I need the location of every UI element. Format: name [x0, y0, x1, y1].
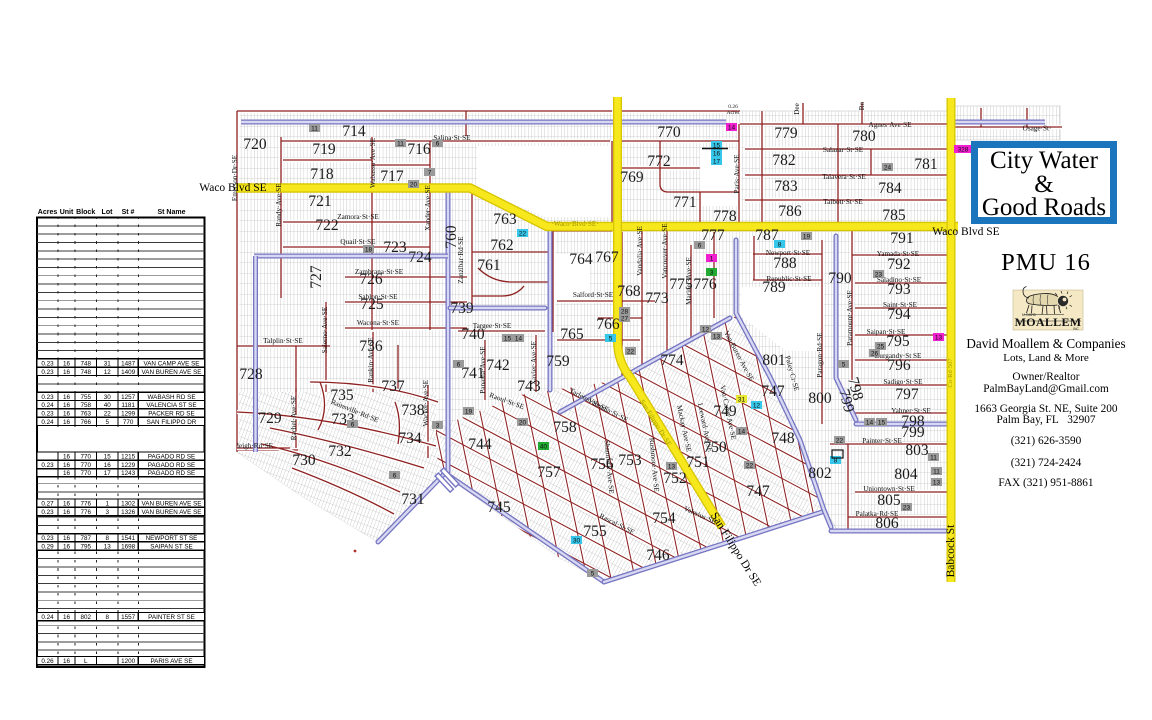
svg-text:Newport·St·SE: Newport·St·SE — [766, 249, 811, 257]
svg-text:PAGADO RD SE: PAGADO RD SE — [148, 470, 195, 477]
svg-text:1: 1 — [105, 501, 109, 508]
svg-text:16: 16 — [63, 470, 71, 477]
svg-text:Vancouver·Ave·SE: Vancouver·Ave·SE — [661, 223, 669, 279]
svg-text:20: 20 — [410, 181, 418, 188]
svg-text:0.24: 0.24 — [41, 614, 54, 621]
svg-text:751: 751 — [686, 454, 709, 471]
svg-text:0.27: 0.27 — [41, 501, 54, 508]
svg-text:16: 16 — [104, 462, 112, 469]
svg-text:779: 779 — [774, 125, 798, 142]
svg-text:771: 771 — [673, 194, 696, 211]
svg-text:7: 7 — [428, 169, 432, 176]
svg-text:13: 13 — [713, 333, 721, 340]
svg-text:6: 6 — [457, 361, 461, 368]
svg-text:11: 11 — [311, 125, 318, 132]
svg-text:Waco Blvd SE: Waco Blvd SE — [932, 226, 999, 238]
svg-text:782: 782 — [772, 152, 795, 169]
svg-text:1: 1 — [710, 255, 714, 262]
svg-text:Republic·St·SE: Republic·St·SE — [766, 275, 812, 283]
svg-text:748: 748 — [80, 369, 91, 376]
svg-text:745: 745 — [487, 499, 511, 516]
svg-text:L: L — [84, 658, 88, 665]
svg-text:leigh·Rd·SE: leigh·Rd·SE — [237, 442, 274, 450]
svg-text:754: 754 — [652, 510, 676, 527]
svg-text:1409: 1409 — [121, 369, 136, 376]
svg-text:PAGADO RD SE: PAGADO RD SE — [148, 462, 195, 469]
svg-text:1181: 1181 — [121, 402, 135, 409]
svg-text:WABASH RD SE: WABASH RD SE — [147, 394, 195, 401]
svg-text:764: 764 — [569, 251, 593, 268]
svg-text:739: 739 — [450, 300, 474, 317]
svg-text:718: 718 — [310, 166, 334, 183]
svg-text:Randy·Ave·SE: Randy·Ave·SE — [275, 183, 283, 227]
svg-text:22: 22 — [104, 411, 112, 418]
svg-text:Uniontown·St·SE: Uniontown·St·SE — [863, 485, 915, 493]
svg-text:769: 769 — [620, 169, 644, 186]
svg-text:761: 761 — [477, 257, 500, 274]
svg-text:801: 801 — [762, 352, 785, 369]
svg-text:Lot: Lot — [102, 209, 114, 216]
svg-text:714: 714 — [342, 123, 366, 140]
svg-text:753: 753 — [618, 452, 642, 469]
svg-text:Agnes·Ave·SE: Agnes·Ave·SE — [869, 121, 913, 129]
svg-text:8: 8 — [778, 241, 782, 248]
svg-text:Lots, Land & More: Lots, Land & More — [1003, 352, 1089, 364]
svg-text:5: 5 — [609, 335, 613, 342]
svg-text:797: 797 — [895, 386, 919, 403]
svg-text:16: 16 — [63, 535, 71, 542]
svg-text:13: 13 — [104, 544, 112, 551]
svg-text:755: 755 — [583, 523, 607, 540]
svg-text:Paris·Ave·SE: Paris·Ave·SE — [733, 154, 741, 194]
svg-text:6: 6 — [393, 472, 397, 479]
svg-text:Zanzibar·Rd·SE: Zanzibar·Rd·SE — [457, 236, 465, 284]
svg-text:Yahner·St·SE: Yahner·St·SE — [891, 407, 931, 415]
svg-text:0.24: 0.24 — [41, 419, 54, 426]
svg-text:Quail·St·SE: Quail·St·SE — [340, 238, 376, 246]
svg-text:1257: 1257 — [121, 394, 136, 401]
svg-text:Salerno·Ave·SE: Salerno·Ave·SE — [321, 306, 329, 353]
svg-text:791: 791 — [890, 230, 913, 247]
svg-text:(321) 724-2424: (321) 724-2424 — [1011, 457, 1082, 469]
svg-text:16: 16 — [63, 394, 71, 401]
svg-text:31: 31 — [104, 361, 112, 368]
svg-text:Rachel·Ave·SE: Rachel·Ave·SE — [290, 395, 298, 440]
svg-text:PACKER RD SE: PACKER RD SE — [148, 411, 194, 418]
svg-text:Acres: Acres — [727, 110, 740, 116]
svg-text:Wacona·St·SE: Wacona·St·SE — [357, 319, 400, 327]
svg-text:800: 800 — [808, 390, 832, 407]
svg-text:VAN BUREN AVE SE: VAN BUREN AVE SE — [142, 369, 202, 376]
svg-text:328: 328 — [958, 146, 969, 153]
svg-text:Babcock St: Babcock St — [945, 524, 957, 578]
svg-text:PAGADO RD SE: PAGADO RD SE — [148, 454, 195, 461]
svg-text:5: 5 — [591, 570, 595, 577]
svg-text:748: 748 — [771, 430, 795, 447]
svg-text:Salazar·St·SE: Salazar·St·SE — [823, 146, 864, 154]
svg-text:16: 16 — [63, 509, 71, 516]
svg-text:724: 724 — [408, 249, 432, 266]
svg-text:Sadigo·St·SE: Sadigo·St·SE — [883, 378, 923, 386]
svg-text:781: 781 — [914, 156, 937, 173]
svg-text:12: 12 — [104, 369, 112, 376]
svg-text:763: 763 — [80, 411, 91, 418]
svg-text:731: 731 — [401, 491, 424, 508]
svg-text:40: 40 — [540, 443, 548, 450]
svg-text:786: 786 — [778, 203, 802, 220]
svg-text:Talavera·St·SE: Talavera·St·SE — [822, 173, 866, 181]
svg-text:766: 766 — [596, 316, 620, 333]
svg-text:770: 770 — [80, 462, 91, 469]
svg-text:16: 16 — [63, 361, 71, 368]
svg-text:805: 805 — [877, 492, 901, 509]
svg-text:1243: 1243 — [121, 470, 136, 477]
svg-text:Ro: Ro — [858, 101, 866, 110]
svg-text:804: 804 — [894, 466, 918, 483]
svg-text:Painter·St·SE: Painter·St·SE — [862, 437, 902, 445]
svg-text:Wacker·Ave·SE: Wacker·Ave·SE — [422, 379, 430, 426]
svg-text:16: 16 — [63, 614, 71, 621]
svg-text:VAN BUREN AVE SE: VAN BUREN AVE SE — [142, 501, 202, 508]
svg-text:802: 802 — [808, 465, 831, 482]
svg-text:30: 30 — [104, 394, 112, 401]
svg-text:5: 5 — [842, 361, 846, 368]
svg-text:22: 22 — [519, 230, 527, 237]
svg-text:747: 747 — [746, 483, 770, 500]
svg-text:3: 3 — [710, 269, 714, 276]
svg-text:770: 770 — [80, 470, 91, 477]
svg-text:1302: 1302 — [121, 501, 136, 508]
svg-text:728: 728 — [239, 366, 263, 383]
svg-text:785: 785 — [882, 207, 906, 224]
svg-text:1299: 1299 — [121, 411, 136, 418]
svg-text:748: 748 — [80, 361, 91, 368]
svg-text:16: 16 — [63, 419, 71, 426]
svg-text:13: 13 — [933, 479, 941, 486]
svg-text:Talplin·St·SE: Talplin·St·SE — [263, 337, 303, 345]
svg-text:0.23: 0.23 — [41, 535, 54, 542]
svg-text:1215: 1215 — [121, 454, 136, 461]
svg-text:768: 768 — [617, 283, 641, 300]
svg-text:Talbott·St·SE: Talbott·St·SE — [823, 198, 863, 206]
svg-text:1557: 1557 — [121, 614, 136, 621]
svg-text:752: 752 — [663, 470, 686, 487]
svg-text:PMU 16: PMU 16 — [1001, 249, 1091, 276]
svg-text:12: 12 — [702, 326, 710, 333]
svg-text:758: 758 — [553, 419, 577, 436]
svg-text:799: 799 — [901, 424, 925, 441]
svg-text:22: 22 — [836, 437, 844, 444]
svg-text:776: 776 — [693, 276, 717, 293]
svg-text:0.23: 0.23 — [41, 462, 54, 469]
svg-text:727: 727 — [308, 265, 325, 289]
svg-text:730: 730 — [292, 452, 316, 469]
svg-text:783: 783 — [774, 178, 798, 195]
svg-text:717: 717 — [380, 168, 404, 185]
svg-text:778: 778 — [713, 208, 737, 225]
svg-text:14: 14 — [738, 428, 746, 435]
svg-text:763: 763 — [493, 211, 517, 228]
svg-text:780: 780 — [852, 128, 876, 145]
svg-text:Rankin·Ave·SE: Rankin·Ave·SE — [367, 337, 375, 383]
svg-text:Sablon·St·SE: Sablon·St·SE — [358, 293, 398, 301]
svg-text:6: 6 — [351, 421, 355, 428]
svg-text:Saint·St·SE: Saint·St·SE — [883, 301, 918, 309]
svg-text:40: 40 — [104, 402, 112, 409]
svg-text:767: 767 — [595, 249, 619, 266]
svg-text:732: 732 — [328, 443, 351, 460]
svg-text:14: 14 — [515, 335, 523, 342]
svg-text:Xander·Ave·SE: Xander·Ave·SE — [424, 185, 432, 231]
svg-text:716: 716 — [407, 141, 431, 158]
svg-text:744: 744 — [468, 436, 492, 453]
svg-text:Owner/Realtor: Owner/Realtor — [1012, 371, 1079, 383]
svg-text:787: 787 — [80, 535, 91, 542]
svg-text:722: 722 — [315, 217, 338, 234]
svg-text:3: 3 — [436, 422, 440, 429]
svg-text:16: 16 — [713, 150, 721, 157]
svg-text:Targee·St·SE: Targee·St·SE — [473, 322, 512, 330]
svg-text:11: 11 — [933, 468, 940, 475]
svg-text:802: 802 — [80, 614, 91, 621]
svg-text:3: 3 — [105, 509, 109, 516]
svg-text:27: 27 — [621, 315, 629, 322]
svg-text:22: 22 — [746, 462, 754, 469]
svg-text:1200: 1200 — [121, 658, 136, 665]
svg-text:Xavier·Ave·SE: Xavier·Ave·SE — [530, 340, 538, 385]
svg-text:Palm Bay, FL 32907: Palm Bay, FL 32907 — [996, 414, 1095, 426]
svg-text:762: 762 — [490, 237, 513, 254]
svg-text:770: 770 — [123, 419, 134, 426]
svg-text:Salford·St·SE: Salford·St·SE — [573, 291, 614, 299]
svg-text:766: 766 — [80, 419, 91, 426]
svg-text:719: 719 — [312, 141, 336, 158]
svg-text:784: 784 — [878, 180, 902, 197]
svg-text:15: 15 — [878, 419, 886, 426]
svg-text:Acres: Acres — [38, 209, 58, 216]
svg-text:14: 14 — [866, 419, 874, 426]
svg-text:PalmBayLand@Gmail.com: PalmBayLand@Gmail.com — [983, 383, 1109, 395]
svg-text:Burgandy·St SE: Burgandy·St SE — [875, 352, 922, 360]
svg-text:0.23: 0.23 — [41, 361, 54, 368]
svg-text:·Waco·Blvd·SE·: ·Waco·Blvd·SE· — [552, 220, 599, 228]
svg-text:VAN CAMP AVE SE: VAN CAMP AVE SE — [144, 361, 200, 368]
svg-text:1487: 1487 — [121, 361, 136, 368]
svg-text:6: 6 — [436, 140, 440, 147]
svg-text:St Name: St Name — [157, 209, 185, 216]
svg-text:11: 11 — [397, 140, 404, 147]
svg-text:720: 720 — [243, 136, 267, 153]
svg-text:14: 14 — [728, 124, 736, 131]
svg-text:Yamada·St·SE: Yamada·St·SE — [877, 250, 920, 258]
svg-text:734: 734 — [398, 430, 422, 447]
svg-text:737: 737 — [381, 378, 405, 395]
svg-text:8: 8 — [105, 614, 109, 621]
svg-text:Zambrana·St·SE: Zambrana·St·SE — [355, 268, 404, 276]
svg-text:758: 758 — [80, 402, 91, 409]
svg-text:0.23: 0.23 — [41, 394, 54, 401]
svg-text:772: 772 — [647, 153, 670, 170]
svg-text:Paramount·Ave·SE: Paramount·Ave·SE — [846, 290, 854, 346]
svg-text:30: 30 — [573, 537, 581, 544]
svg-text:PAINTER ST SE: PAINTER ST SE — [148, 614, 195, 621]
svg-text:773: 773 — [645, 290, 669, 307]
svg-text:Block: Block — [76, 209, 95, 216]
svg-text:23: 23 — [875, 271, 883, 278]
svg-text:1326: 1326 — [121, 509, 136, 516]
svg-text:765: 765 — [560, 326, 584, 343]
svg-text:FAX (321) 951-8861: FAX (321) 951-8861 — [998, 477, 1093, 489]
svg-text:16: 16 — [63, 402, 71, 409]
svg-text:24: 24 — [884, 164, 892, 171]
svg-text:Wabasso·Ave·SE: Wabasso·Ave·SE — [369, 137, 377, 188]
svg-text:746: 746 — [646, 547, 670, 564]
svg-text:Panama·Ave·SE: Panama·Ave·SE — [479, 346, 487, 394]
svg-text:721: 721 — [308, 193, 331, 210]
svg-text:17: 17 — [713, 158, 721, 165]
svg-text:16: 16 — [63, 454, 71, 461]
svg-text:776: 776 — [80, 509, 91, 516]
svg-text:790: 790 — [828, 270, 852, 287]
svg-text:23: 23 — [903, 504, 911, 511]
svg-text:16: 16 — [63, 658, 71, 665]
svg-text:18: 18 — [365, 246, 373, 253]
svg-text:5: 5 — [105, 419, 109, 426]
svg-text:6: 6 — [698, 242, 702, 249]
svg-text:Osage·St·: Osage·St· — [1023, 125, 1052, 133]
svg-text:VALENCIA ST SE: VALENCIA ST SE — [146, 402, 196, 409]
svg-text:17: 17 — [104, 470, 112, 477]
svg-text:1541: 1541 — [121, 535, 136, 542]
svg-text:1698: 1698 — [121, 544, 136, 551]
svg-text:13: 13 — [668, 463, 676, 470]
svg-text:16: 16 — [63, 501, 71, 508]
svg-text:774: 774 — [660, 352, 684, 369]
svg-text:11: 11 — [930, 454, 937, 461]
svg-text:City Water: City Water — [990, 147, 1099, 174]
svg-text:22: 22 — [627, 348, 635, 355]
svg-text:31: 31 — [738, 396, 746, 403]
svg-text:16: 16 — [63, 369, 71, 376]
svg-text:729: 729 — [258, 410, 282, 427]
svg-text:MOALLEM: MOALLEM — [1015, 315, 1082, 329]
svg-text:1229: 1229 — [121, 462, 136, 469]
svg-text:19: 19 — [465, 408, 473, 415]
svg-text:Zamora·St·SE: Zamora·St·SE — [337, 213, 379, 221]
svg-text:NEWPORT ST SE: NEWPORT ST SE — [146, 535, 198, 542]
svg-text:755: 755 — [80, 394, 91, 401]
svg-text:Unit: Unit — [60, 209, 74, 216]
svg-text:776: 776 — [80, 501, 91, 508]
svg-text:8: 8 — [105, 535, 109, 542]
svg-text:Paragon·Rd·SE: Paragon·Rd·SE — [816, 332, 824, 378]
svg-text:742: 742 — [486, 357, 509, 374]
svg-text:792: 792 — [887, 256, 910, 273]
svg-text:19: 19 — [803, 233, 811, 240]
svg-text:INC: INC — [1073, 327, 1079, 331]
svg-text:15: 15 — [104, 454, 112, 461]
svg-text:15: 15 — [504, 335, 512, 342]
svg-text:St #: St # — [122, 209, 135, 216]
svg-text:723: 723 — [383, 239, 407, 256]
svg-text:759: 759 — [546, 353, 570, 370]
svg-text:0.29: 0.29 — [41, 544, 54, 551]
svg-text:747: 747 — [761, 383, 785, 400]
svg-text:12: 12 — [753, 402, 761, 409]
svg-text:Emerson·Dr·SE: Emerson·Dr·SE — [231, 154, 239, 201]
svg-text:757: 757 — [537, 464, 561, 481]
svg-text:0.26: 0.26 — [41, 658, 54, 665]
svg-text:13: 13 — [935, 334, 943, 341]
svg-text:0.23: 0.23 — [41, 369, 54, 376]
svg-text:770: 770 — [80, 454, 91, 461]
svg-text:(321) 626-3590: (321) 626-3590 — [1011, 435, 1082, 447]
svg-text:Saipan·St·SE: Saipan·St·SE — [867, 328, 906, 336]
svg-text:20: 20 — [519, 419, 527, 426]
svg-text:Vandalia·Ave·SE: Vandalia·Ave·SE — [636, 226, 644, 276]
svg-text:Dee: Dee — [793, 103, 801, 115]
svg-text:0.23: 0.23 — [41, 509, 54, 516]
svg-text:788: 788 — [773, 255, 797, 272]
svg-text:16: 16 — [63, 462, 71, 469]
svg-text:Mariner·Ave·SE: Mariner·Ave·SE — [685, 257, 693, 305]
svg-text:VAN BUREN AVE SE: VAN BUREN AVE SE — [142, 509, 202, 516]
svg-text:PARIS AVE SE: PARIS AVE SE — [150, 658, 192, 665]
svg-text:803: 803 — [905, 442, 929, 459]
svg-text:26: 26 — [871, 350, 879, 357]
svg-text:770: 770 — [657, 124, 681, 141]
svg-text:16: 16 — [63, 411, 71, 418]
svg-text:SAIPAN ST SE: SAIPAN ST SE — [150, 544, 192, 551]
svg-text:SAN FILIPPO DR: SAN FILIPPO DR — [147, 419, 197, 426]
svg-text:Waco Blvd SE: Waco Blvd SE — [199, 182, 266, 194]
svg-text:Good Roads: Good Roads — [982, 194, 1106, 221]
svg-text:David Moallem & Companies: David Moallem & Companies — [966, 336, 1125, 351]
svg-text:0.23: 0.23 — [41, 411, 54, 418]
svg-text:Palatka·Rd·SE: Palatka·Rd·SE — [856, 510, 899, 518]
svg-text:16: 16 — [63, 544, 71, 551]
svg-text:0.24: 0.24 — [41, 402, 54, 409]
svg-text:795: 795 — [80, 544, 91, 551]
svg-text:Co·Rd·507: Co·Rd·507 — [947, 358, 954, 388]
